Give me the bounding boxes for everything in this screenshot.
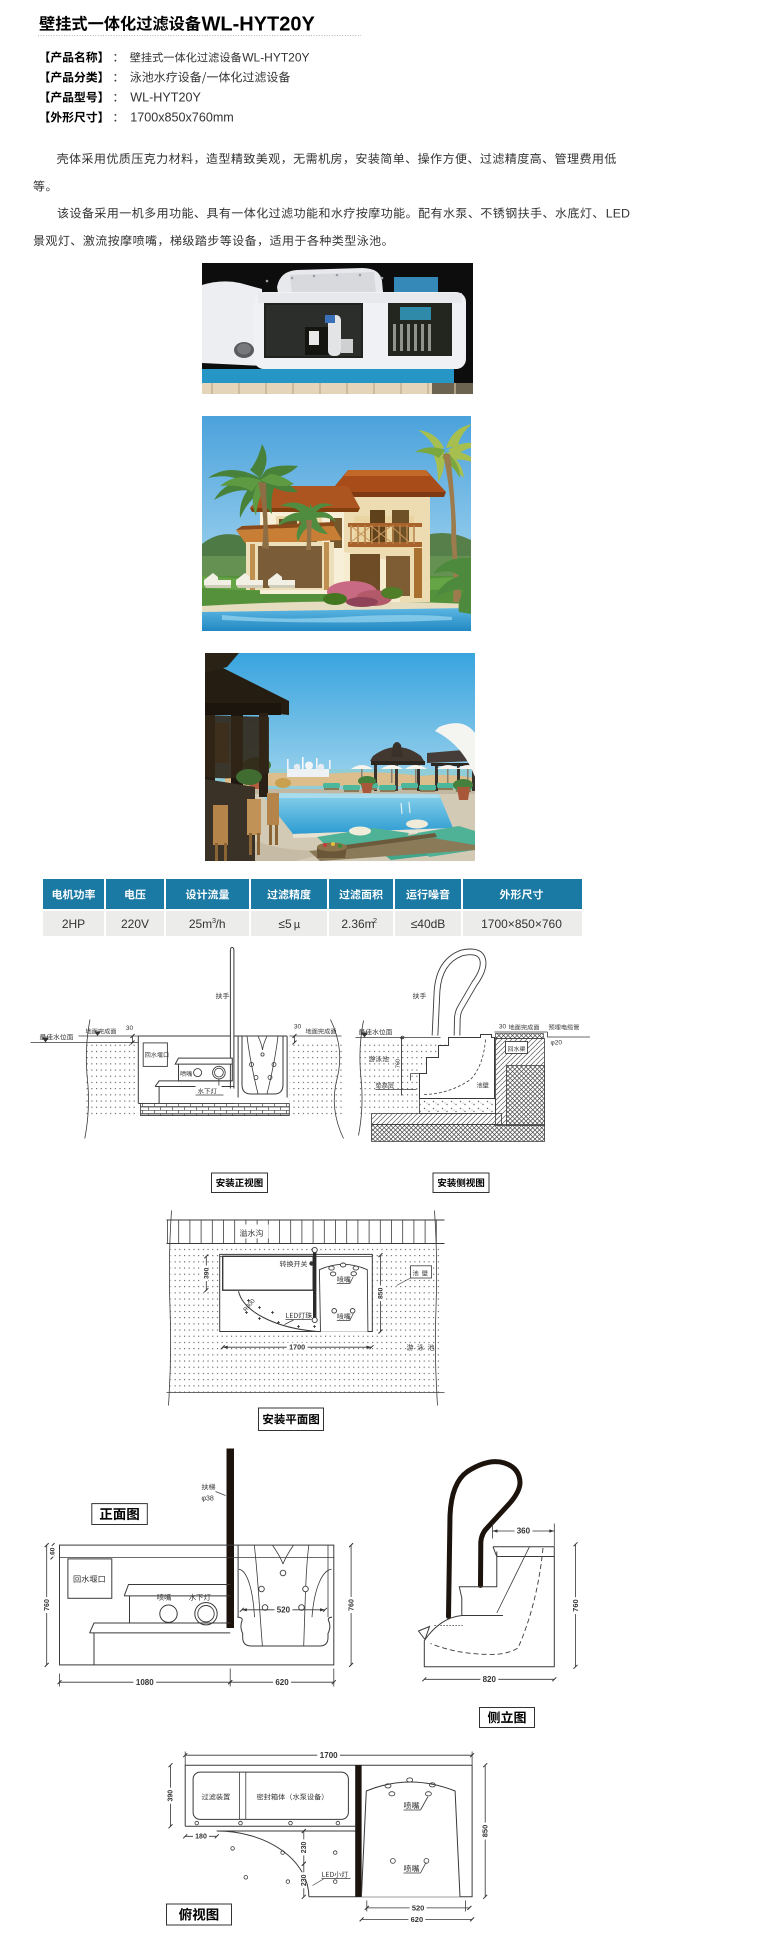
svg-text:1700x850x760mm: 1700x850x760mm [130,111,234,125]
svg-text:620: 620 [411,1915,424,1924]
svg-text:25m: 25m [189,917,212,931]
svg-text:760: 760 [396,1059,402,1068]
svg-text:φ20: φ20 [551,1040,563,1047]
svg-text:WL-HYT20Y: WL-HYT20Y [130,91,201,105]
svg-text:WL-HYT20Y: WL-HYT20Y [242,51,309,65]
svg-text:760: 760 [44,1599,51,1611]
svg-text:850: 850 [481,1825,490,1838]
svg-text:2.36m: 2.36m [341,917,374,931]
svg-text:LED: LED [606,207,630,221]
svg-text:60: 60 [50,1547,57,1555]
svg-text:180: 180 [195,1834,207,1841]
svg-text:620: 620 [275,1678,289,1687]
svg-text:220V: 220V [121,917,149,931]
svg-text:850: 850 [378,1287,385,1299]
svg-text:1700×850×760: 1700×850×760 [481,917,562,931]
svg-text:≤5: ≤5 [278,917,292,931]
svg-text:2: 2 [373,916,377,925]
svg-text:30: 30 [126,1025,134,1032]
svg-text:760: 760 [571,1599,580,1612]
svg-text:360: 360 [517,1527,531,1536]
svg-text:520: 520 [412,1903,425,1912]
svg-text:1700: 1700 [289,1343,305,1352]
svg-text:390: 390 [168,1790,175,1802]
svg-text:30: 30 [294,1024,302,1031]
svg-text:390: 390 [204,1267,211,1279]
svg-text:WL-HYT20Y: WL-HYT20Y [202,13,316,35]
svg-text:230: 230 [301,1841,308,1853]
svg-text:1080: 1080 [136,1678,154,1687]
svg-text:2HP: 2HP [62,917,85,931]
svg-text:230: 230 [301,1874,308,1886]
svg-text:/h: /h [215,917,225,931]
svg-text:820: 820 [483,1675,497,1684]
svg-text:760: 760 [348,1599,355,1611]
svg-text:φ38: φ38 [202,1496,214,1503]
svg-text:≤40dB: ≤40dB [411,917,446,931]
svg-text:30: 30 [499,1024,507,1031]
svg-text:1700: 1700 [320,1751,338,1760]
svg-text:520: 520 [277,1605,291,1614]
